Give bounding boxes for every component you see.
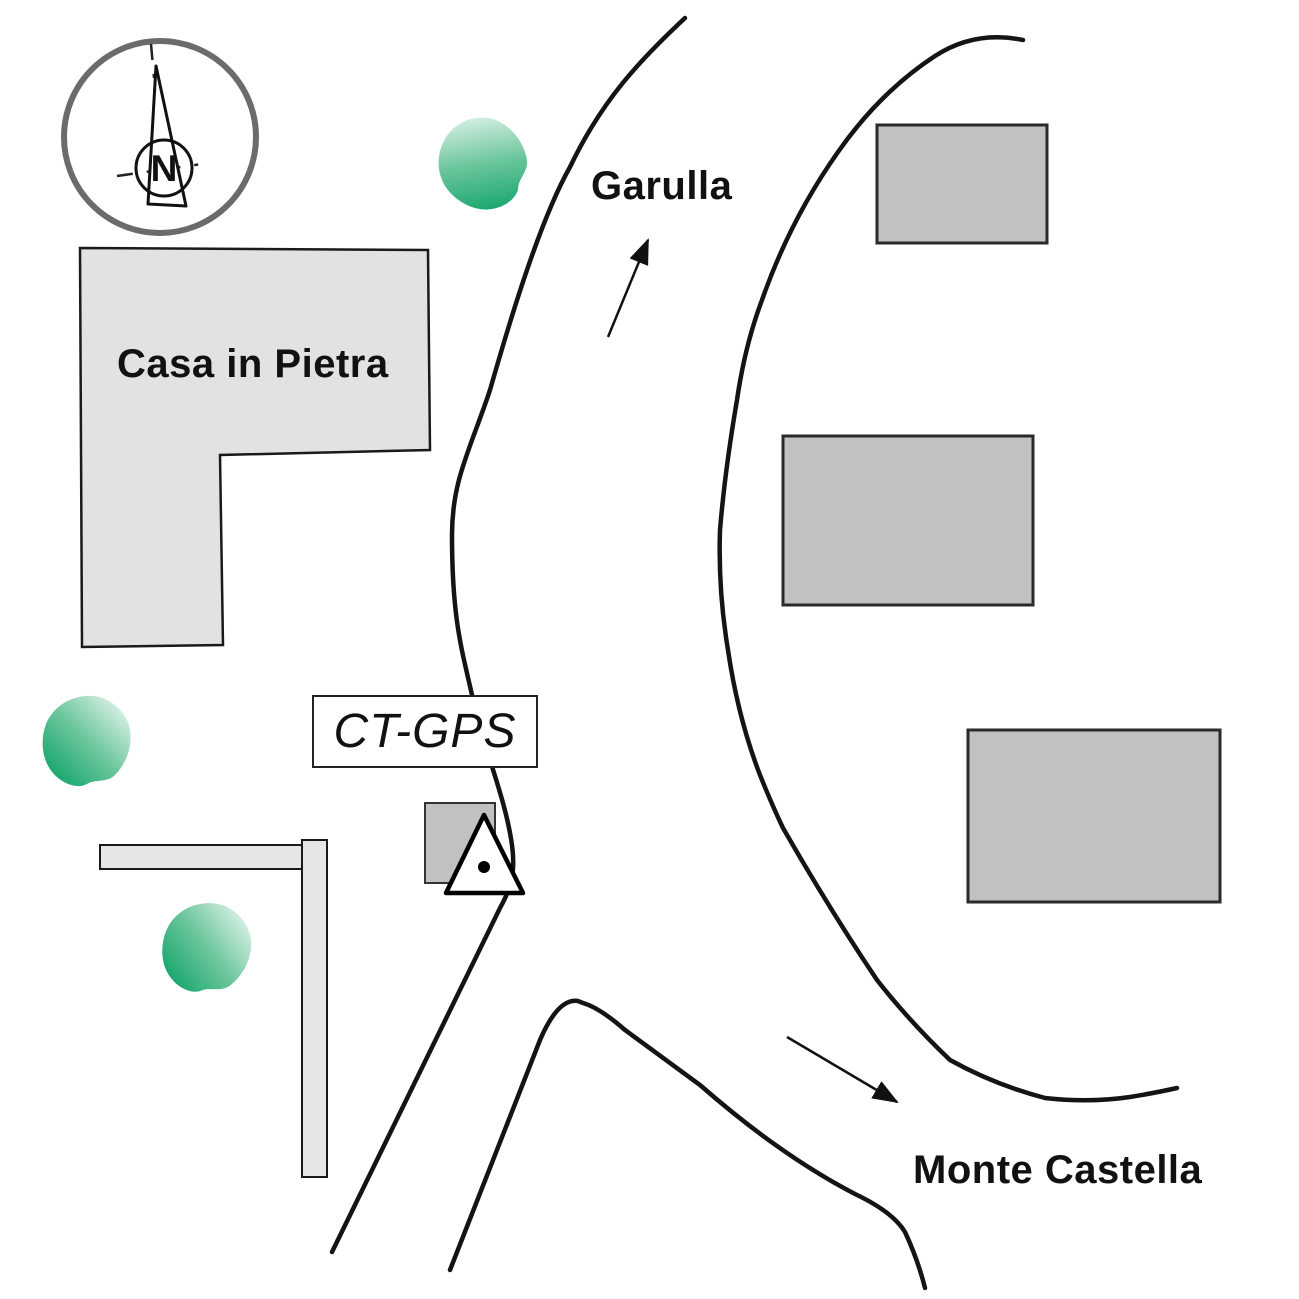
arrow-to-garulla [608, 240, 648, 337]
road-fork-edge [450, 1001, 925, 1288]
monte-castella-label: Monte Castella [913, 1148, 1202, 1193]
compass-rose-icon [64, 41, 256, 233]
station-marker-dot [478, 861, 490, 873]
building [783, 436, 1033, 605]
garulla-label: Garulla [591, 164, 732, 209]
wall-vertical [302, 840, 327, 1177]
station-name-box: CT-GPS [312, 695, 538, 768]
tree-icon [157, 897, 257, 999]
compass-north-label: N [143, 148, 185, 190]
station-name-label: CT-GPS [334, 704, 517, 759]
house-label: Casa in Pietra [117, 342, 389, 387]
tree-icon [43, 696, 131, 786]
site-sketch-map: Casa in Pietra Garulla Monte Castella CT… [0, 0, 1299, 1299]
building [877, 125, 1047, 243]
building [968, 730, 1220, 902]
wall-horizontal [100, 845, 325, 869]
tree-icon [421, 101, 545, 225]
arrow-to-monte-castella [787, 1037, 897, 1102]
house-outline [80, 248, 430, 647]
